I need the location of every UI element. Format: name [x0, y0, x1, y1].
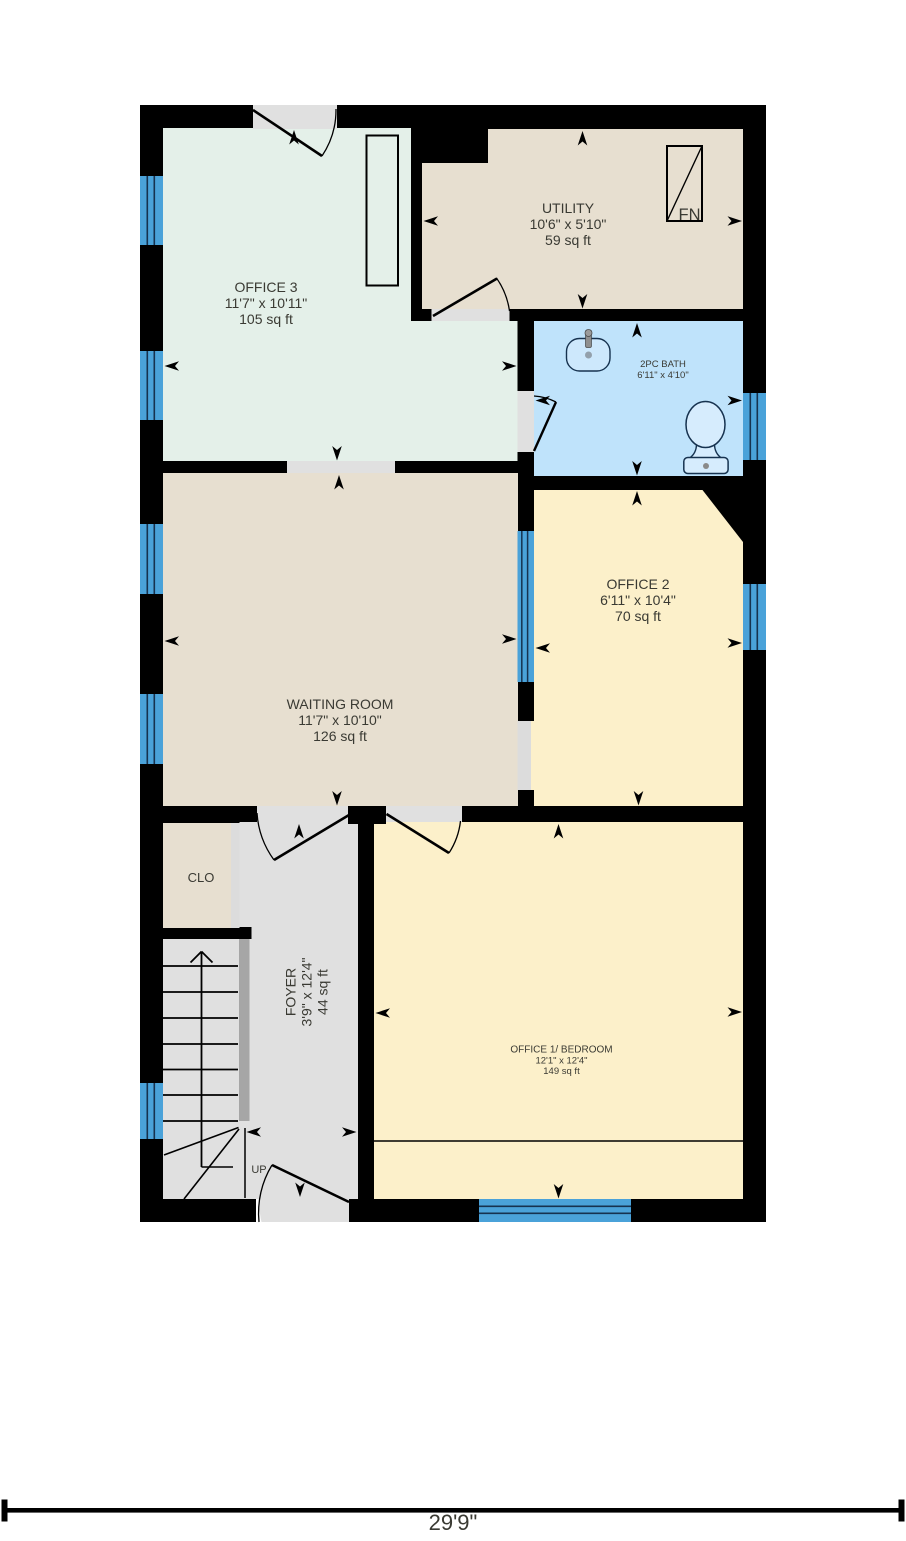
svg-text:6'11" x 10'4": 6'11" x 10'4" — [600, 592, 676, 608]
svg-text:11'7" x 10'11": 11'7" x 10'11" — [225, 295, 308, 311]
svg-text:70 sq ft: 70 sq ft — [615, 608, 661, 624]
svg-text:WAITING ROOM: WAITING ROOM — [287, 696, 394, 712]
svg-text:29'9": 29'9" — [429, 1510, 478, 1535]
svg-text:59 sq ft: 59 sq ft — [545, 232, 591, 248]
svg-text:UTILITY: UTILITY — [542, 200, 595, 216]
svg-text:6'11" x 4'10": 6'11" x 4'10" — [637, 370, 688, 381]
svg-text:3'9" x 12'4": 3'9" x 12'4" — [299, 957, 315, 1026]
svg-text:126 sq ft: 126 sq ft — [313, 728, 367, 744]
svg-text:2PC BATH: 2PC BATH — [640, 359, 686, 370]
svg-text:105 sq ft: 105 sq ft — [239, 311, 293, 327]
svg-text:149 sq ft: 149 sq ft — [543, 1066, 580, 1077]
svg-text:CLO: CLO — [188, 870, 215, 885]
svg-text:FOYER: FOYER — [283, 968, 299, 1016]
svg-text:10'6" x 5'10": 10'6" x 5'10" — [530, 216, 607, 232]
svg-text:12'1" x 12'4": 12'1" x 12'4" — [535, 1056, 587, 1067]
svg-text:OFFICE 1/ BEDROOM: OFFICE 1/ BEDROOM — [510, 1045, 612, 1056]
svg-text:OFFICE 2: OFFICE 2 — [606, 576, 669, 592]
svg-text:UP: UP — [251, 1164, 266, 1176]
svg-text:11'7" x 10'10": 11'7" x 10'10" — [298, 712, 382, 728]
svg-text:OFFICE 3: OFFICE 3 — [234, 279, 297, 295]
svg-text:44 sq ft: 44 sq ft — [315, 969, 331, 1015]
svg-text:FN: FN — [679, 206, 701, 224]
